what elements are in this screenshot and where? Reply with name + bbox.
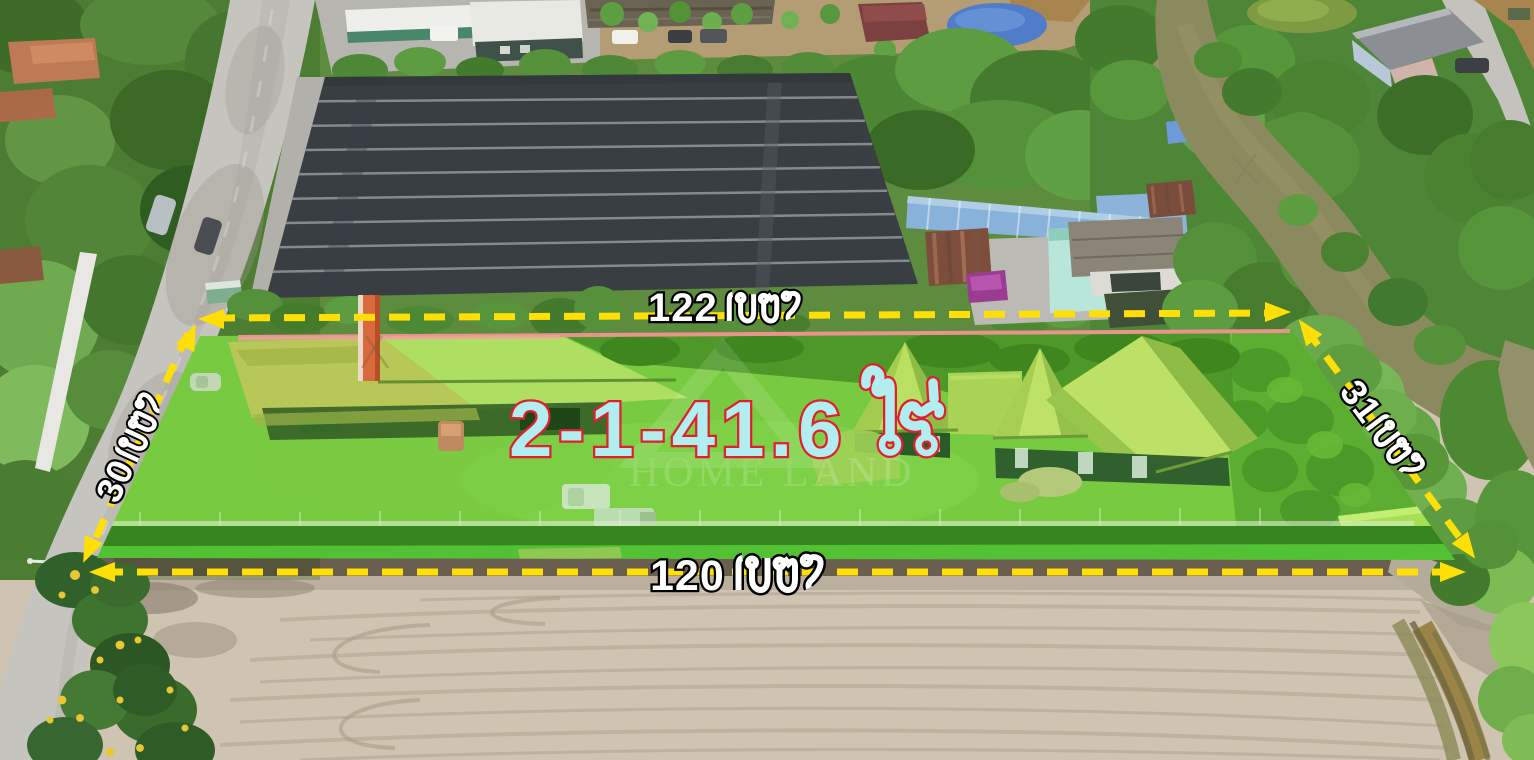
- svg-text:122: 122: [648, 286, 718, 330]
- svg-text:2-1-41.6: 2-1-41.6: [509, 385, 848, 473]
- svg-text:120: 120: [650, 552, 725, 600]
